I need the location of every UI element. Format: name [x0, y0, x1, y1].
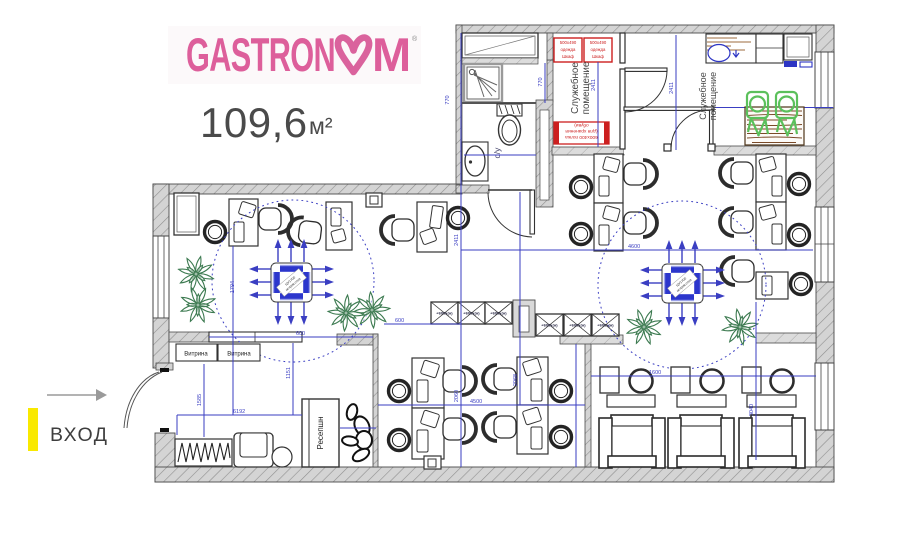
svg-text:1585: 1585 [197, 394, 203, 406]
svg-text:600х400 полка: 600х400 полка [565, 134, 598, 140]
svg-text:«600х(н): «600х(н) [597, 323, 614, 328]
svg-text:1600: 1600 [649, 370, 661, 376]
svg-text:«600х(н): «600х(н) [541, 323, 558, 328]
svg-text:2411: 2411 [669, 82, 675, 94]
svg-text:«600х(н): «600х(н) [436, 311, 453, 316]
svg-text:«600х(н): «600х(н) [569, 323, 586, 328]
svg-text:Служебное: Служебное [698, 72, 708, 119]
svg-text:Витрина: Витрина [184, 352, 208, 358]
svg-text:109,6: 109,6 [200, 99, 308, 146]
svg-text:GASTRON: GASTRON [186, 28, 335, 81]
svg-text:Шкаф: Шкаф [592, 54, 604, 59]
svg-text:Шкаф: Шкаф [562, 54, 574, 59]
svg-text:®: ® [412, 35, 418, 43]
svg-text:одежда: одежда [591, 47, 607, 52]
svg-text:4600: 4600 [628, 244, 640, 250]
svg-text:1151: 1151 [286, 367, 292, 379]
svg-text:помещение: помещение [708, 72, 718, 120]
svg-text:600: 600 [296, 331, 305, 337]
svg-text:(для хранения: (для хранения [565, 128, 598, 134]
svg-text:одежда: одежда [561, 47, 577, 52]
svg-text:«600х(н): «600х(н) [490, 311, 507, 316]
svg-text:600: 600 [395, 318, 404, 324]
svg-text:Ресепшн: Ресепшн [316, 416, 325, 449]
svg-text:770: 770 [538, 77, 544, 86]
svg-text:обуви): обуви) [574, 122, 589, 128]
svg-text:ВХОД: ВХОД [50, 424, 108, 446]
svg-text:3040: 3040 [749, 404, 755, 416]
svg-text:770: 770 [445, 95, 451, 104]
svg-text:500х490: 500х490 [560, 40, 577, 45]
svg-text:Служебное: Служебное [570, 62, 581, 114]
svg-text:500х490: 500х490 [590, 40, 607, 45]
svg-text:2060: 2060 [454, 390, 460, 402]
svg-text:6192: 6192 [233, 409, 245, 415]
svg-text:2411: 2411 [591, 79, 597, 91]
svg-text:м²: м² [309, 113, 333, 139]
svg-text:«600х(н): «600х(н) [463, 311, 480, 316]
svg-text:4500: 4500 [470, 399, 482, 405]
svg-text:Витрина: Витрина [227, 352, 251, 358]
svg-text:M: M [372, 28, 411, 81]
svg-text:2411: 2411 [454, 234, 460, 246]
svg-text:1794: 1794 [230, 281, 236, 293]
svg-text:с/у: с/у [492, 147, 502, 159]
svg-text:2068: 2068 [513, 374, 519, 386]
